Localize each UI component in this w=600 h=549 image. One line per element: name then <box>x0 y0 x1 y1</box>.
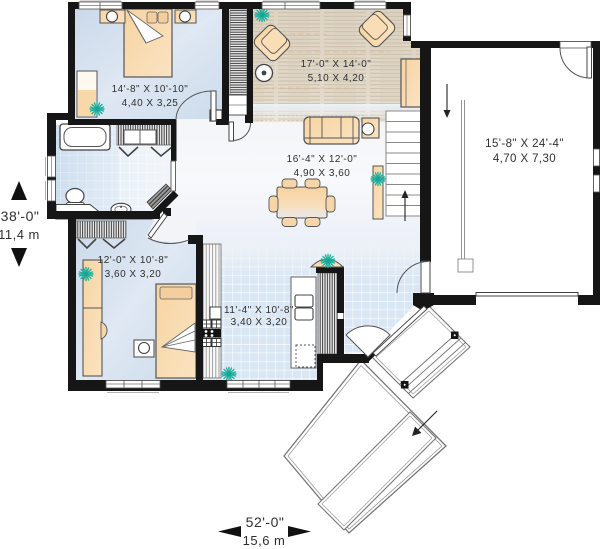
svg-text:16'-4" X 12'-0": 16'-4" X 12'-0" <box>287 154 358 165</box>
svg-text:3,60 X 3,20: 3,60 X 3,20 <box>105 269 162 280</box>
svg-text:3,40 X 3,20: 3,40 X 3,20 <box>231 317 288 328</box>
svg-text:15'-8" X 24'-4": 15'-8" X 24'-4" <box>485 138 564 150</box>
svg-text:4,70 X 7,30: 4,70 X 7,30 <box>493 153 556 165</box>
svg-text:11,4 m: 11,4 m <box>0 227 40 242</box>
svg-text:15,6 m: 15,6 m <box>243 533 286 548</box>
svg-text:38'-0": 38'-0" <box>1 208 40 224</box>
svg-text:17'-0" X 14'-0": 17'-0" X 14'-0" <box>301 59 372 70</box>
svg-text:12'-0" X 10'-8": 12'-0" X 10'-8" <box>98 255 169 266</box>
svg-text:5,10 X 4,20: 5,10 X 4,20 <box>308 73 365 84</box>
svg-text:52'-0": 52'-0" <box>246 514 285 530</box>
svg-text:4,40 X 3,25: 4,40 X 3,25 <box>122 98 179 109</box>
svg-text:14'-8" X 10'-10": 14'-8" X 10'-10" <box>112 84 189 95</box>
svg-text:4,90 X 3,60: 4,90 X 3,60 <box>294 168 351 179</box>
svg-text:11'-4" X 10'-8": 11'-4" X 10'-8" <box>224 305 294 316</box>
